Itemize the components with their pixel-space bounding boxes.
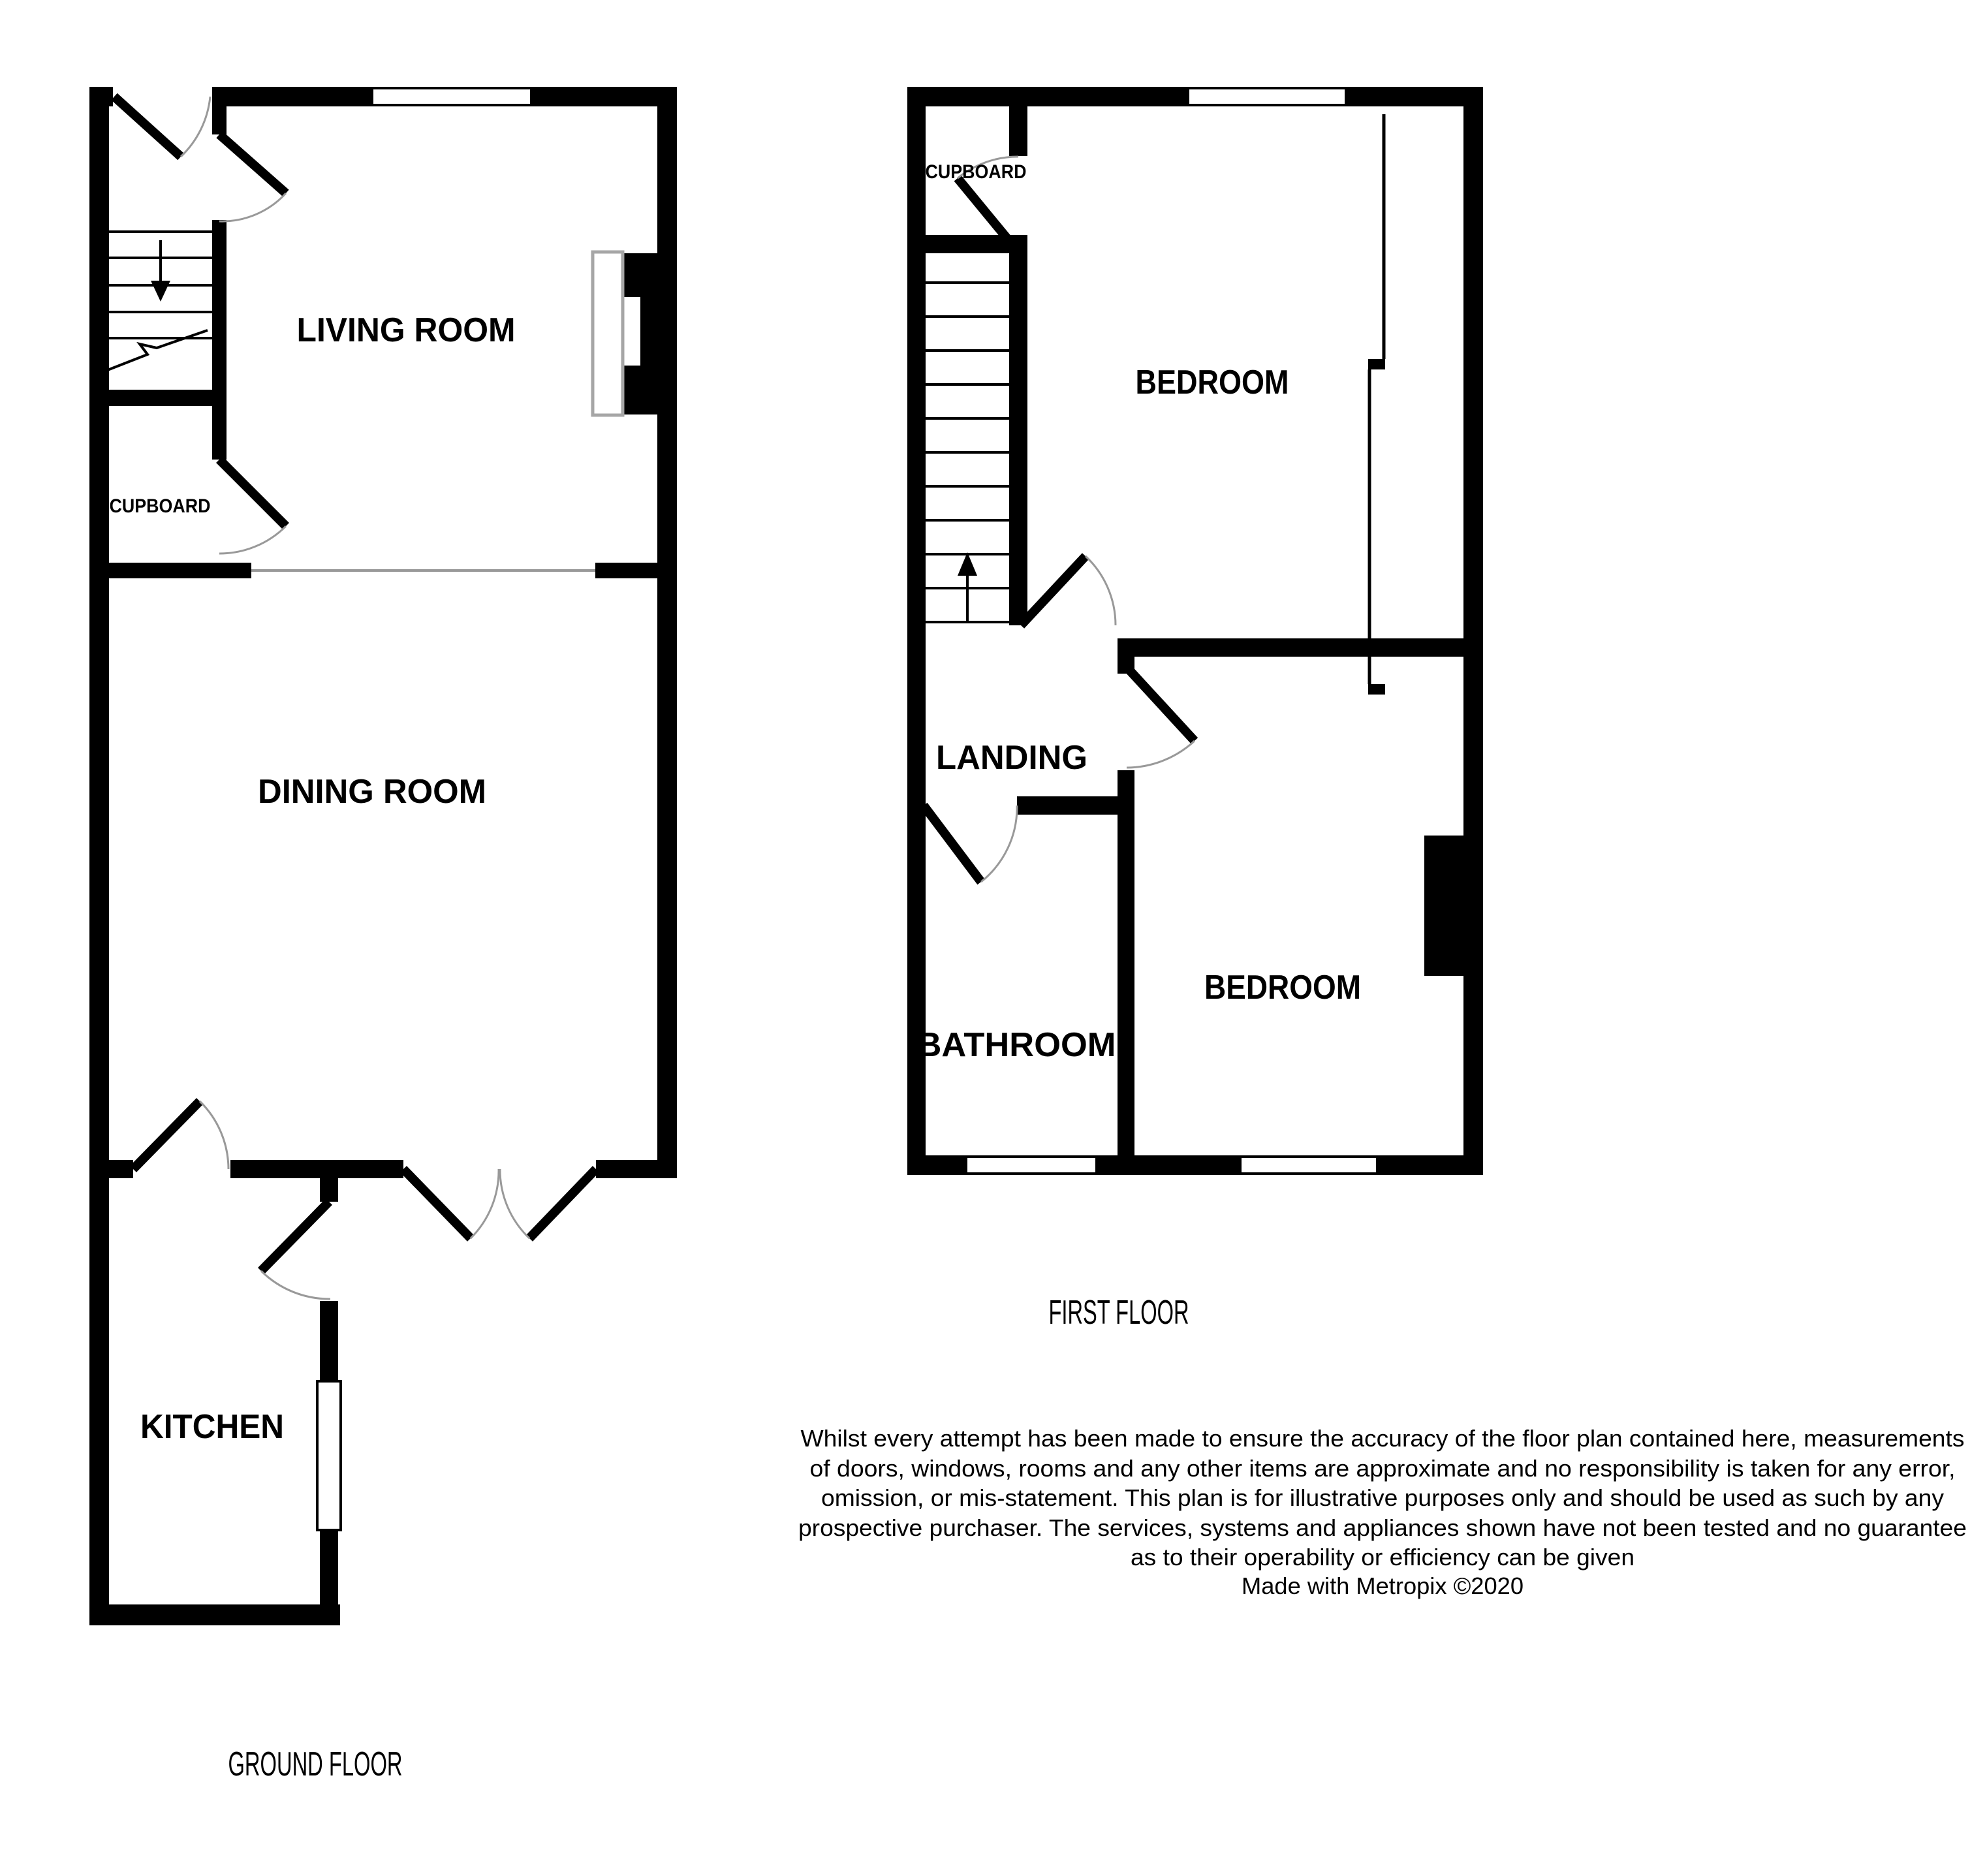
bedroom-back-door-arc bbox=[1127, 741, 1195, 768]
gf-cupboard-door-arc bbox=[219, 526, 286, 554]
gf-dining-bottom-wall-1 bbox=[89, 1160, 133, 1178]
gf-cupboard-label: CUPBOARD bbox=[110, 495, 211, 517]
bedroom-back-door bbox=[1127, 667, 1195, 768]
ff-stair-side-wall bbox=[1009, 253, 1027, 625]
bathroom-window bbox=[966, 1157, 1097, 1174]
bedroom-front-door-leaf bbox=[1021, 556, 1086, 625]
gf-right-wall bbox=[657, 87, 677, 1178]
disclaimer-block: Whilst every attempt has been made to en… bbox=[798, 1425, 1967, 1599]
bedroom-back-door-leaf bbox=[1127, 667, 1195, 741]
bathroom-door bbox=[924, 805, 1017, 882]
disclaimer-line-4: prospective purchaser. The services, sys… bbox=[798, 1514, 1967, 1541]
ff-bedroom-divider-wall bbox=[1118, 638, 1463, 657]
gf-divider-wall-right bbox=[595, 563, 657, 578]
gf-stair-side-wall bbox=[212, 220, 227, 406]
bathroom-door-leaf bbox=[924, 805, 981, 882]
ff-stairs bbox=[926, 283, 1009, 622]
ff-cupboard-label: CUPBOARD bbox=[926, 161, 1027, 183]
kitchen-door bbox=[261, 1202, 330, 1299]
ff-right-wall bbox=[1463, 87, 1483, 1175]
bedroom-back-window bbox=[1240, 1157, 1377, 1174]
ff-walls bbox=[907, 87, 1483, 1175]
ff-wardrobe-tick-mid bbox=[1368, 359, 1385, 369]
front-entry-door bbox=[114, 97, 210, 157]
gf-hearth bbox=[593, 252, 623, 415]
disclaimer-line-5: as to their operability or efficiency ca… bbox=[1131, 1544, 1634, 1571]
living-room-door bbox=[219, 134, 286, 221]
kitchen-door-leaf bbox=[261, 1202, 329, 1271]
bathroom-door-arc bbox=[981, 805, 1017, 882]
french-door-left-arc bbox=[471, 1169, 499, 1238]
bedroom-front-label: BEDROOM bbox=[1136, 364, 1289, 401]
living-room-door-arc bbox=[219, 193, 286, 221]
kitchen-window bbox=[317, 1381, 341, 1530]
living-room-label: LIVING ROOM bbox=[297, 311, 516, 349]
french-door-left-leaf bbox=[403, 1169, 471, 1238]
disclaimer-line-2: of doors, windows, rooms and any other i… bbox=[810, 1455, 1956, 1482]
dining-room-label: DINING ROOM bbox=[258, 773, 486, 811]
gf-stairs bbox=[106, 232, 212, 371]
ff-cupboard-stub bbox=[1009, 106, 1027, 156]
gf-stairs-down-arrow bbox=[151, 281, 170, 302]
kitchen-label: KITCHEN bbox=[140, 1408, 284, 1446]
ff-stairs-up-arrow bbox=[958, 552, 977, 576]
living-room-door-leaf bbox=[219, 134, 286, 193]
kitchen-door-arc bbox=[261, 1271, 330, 1299]
gf-left-wall bbox=[89, 87, 109, 1625]
bathroom-label: BATHROOM bbox=[917, 1026, 1116, 1064]
floorplan-canvas: LIVING ROOM DINING ROOM KITCHEN CUPBOARD… bbox=[0, 0, 1970, 1876]
gf-kitchen-right-wall-top bbox=[320, 1160, 338, 1202]
disclaimer-line-3: omission, or mis-statement. This plan is… bbox=[821, 1484, 1944, 1511]
first-floor-title: FIRST FLOOR bbox=[1049, 1294, 1189, 1332]
gf-cupboard-door-leaf bbox=[219, 460, 286, 526]
gf-doors bbox=[114, 97, 596, 1299]
disclaimer-credit: Made with Metropix ©2020 bbox=[1242, 1572, 1524, 1599]
bedroom-front-door-arc bbox=[1086, 556, 1116, 625]
landing-label: LANDING bbox=[936, 739, 1087, 777]
gf-stairs-bottom-wall bbox=[109, 390, 227, 406]
ff-chimney-breast bbox=[1424, 836, 1463, 976]
ff-bathroom-bedroom-wall bbox=[1118, 770, 1134, 1155]
gf-cupboard-door bbox=[219, 460, 286, 554]
dining-rear-door-leaf bbox=[133, 1101, 200, 1169]
front-entry-door-leaf bbox=[114, 97, 181, 157]
dining-rear-door bbox=[133, 1101, 228, 1169]
gf-dining-bottom-wall-2 bbox=[230, 1160, 403, 1178]
ground-floor-plan: LIVING ROOM DINING ROOM KITCHEN CUPBOARD… bbox=[89, 87, 677, 1783]
french-door-right-leaf bbox=[529, 1169, 596, 1238]
gf-vestibule-stub bbox=[212, 106, 227, 134]
bedroom-front-window bbox=[1188, 88, 1346, 105]
bedroom-front-door bbox=[1021, 556, 1116, 625]
disclaimer-line-1: Whilst every attempt has been made to en… bbox=[801, 1425, 1965, 1452]
front-entry-door-arc bbox=[181, 97, 210, 157]
dining-rear-door-arc bbox=[200, 1101, 228, 1169]
ff-wardrobe-tick-bottom bbox=[1368, 684, 1385, 695]
gf-dining-bottom-wall-3 bbox=[596, 1160, 657, 1178]
ff-windows bbox=[966, 88, 1377, 1174]
ff-landing-bathroom-wall bbox=[1017, 796, 1118, 815]
living-room-window bbox=[372, 88, 531, 105]
gf-divider-wall-left bbox=[89, 563, 251, 578]
gf-chimney-opening bbox=[623, 297, 640, 366]
bedroom-back-label: BEDROOM bbox=[1204, 969, 1361, 1007]
gf-stairs-break-line bbox=[106, 330, 208, 371]
french-door-right-arc bbox=[500, 1169, 529, 1238]
french-doors bbox=[403, 1169, 596, 1238]
ff-left-wall bbox=[907, 87, 926, 1175]
gf-kitchen-bottom-wall bbox=[89, 1604, 340, 1625]
ground-floor-title: GROUND FLOOR bbox=[228, 1745, 403, 1783]
gf-cupboard-stub bbox=[212, 406, 227, 460]
first-floor-plan: BEDROOM LANDING BATHROOM BEDROOM CUPBOAR… bbox=[907, 87, 1483, 1332]
